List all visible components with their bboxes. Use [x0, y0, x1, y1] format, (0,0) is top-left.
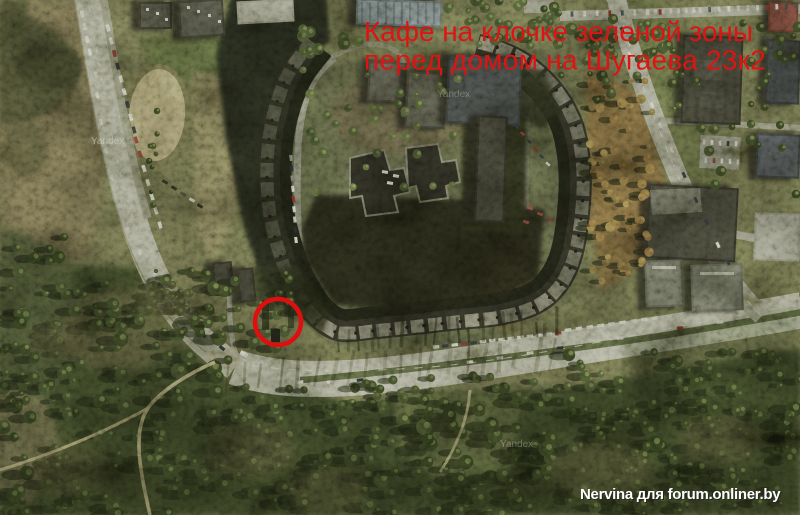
svg-text:Кафе на клочке зеленой зоны: Кафе на клочке зеленой зоны [364, 16, 753, 47]
svg-text:перед домом на Шугаева 23к2: перед домом на Шугаева 23к2 [364, 45, 766, 76]
svg-text:Nervina для forum.onliner.by: Nervina для forum.onliner.by [580, 486, 781, 503]
